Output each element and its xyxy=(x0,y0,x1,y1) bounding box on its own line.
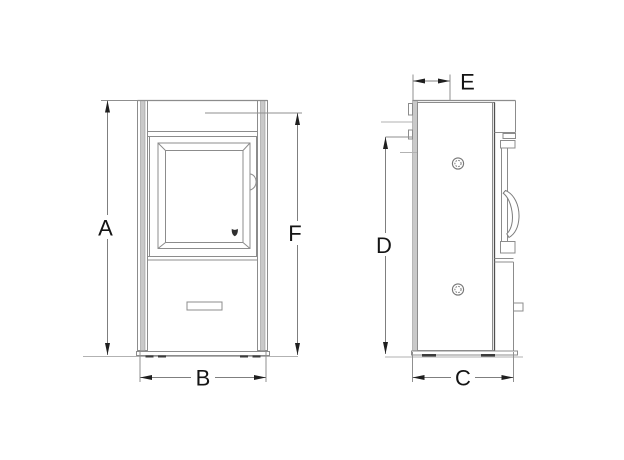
dimension-label-e: E xyxy=(460,70,475,95)
right-side-panel xyxy=(258,101,268,351)
dimension-b: B xyxy=(140,352,266,391)
window-glass xyxy=(166,151,244,243)
dimension-c: C xyxy=(413,352,514,391)
side-door-profile xyxy=(501,141,520,254)
side-knob-bottom xyxy=(452,284,463,295)
front-lower-profile xyxy=(495,259,524,351)
base-plate-front xyxy=(137,352,270,356)
dimension-drawing-page: A F B xyxy=(0,0,624,460)
dimension-d: D xyxy=(373,137,413,354)
side-body-panel xyxy=(418,103,495,351)
upper-band xyxy=(148,132,258,137)
stove-window xyxy=(158,143,250,249)
side-view: E D C xyxy=(373,70,523,391)
dimension-label-b: B xyxy=(196,366,211,391)
side-knob-top xyxy=(452,158,463,169)
stove-dimension-drawing: A F B xyxy=(0,0,624,460)
stove-door xyxy=(148,137,258,261)
left-side-panel xyxy=(138,101,148,351)
dimension-e: E xyxy=(413,70,475,101)
window-logo-icon xyxy=(232,229,238,236)
dimension-label-a: A xyxy=(98,216,113,241)
rear-brackets xyxy=(381,104,417,153)
ash-lever-tab xyxy=(514,303,524,311)
front-view: A F B xyxy=(83,101,308,391)
front-upper-profile xyxy=(495,101,516,139)
dimension-label-d: D xyxy=(376,233,392,258)
dimension-label-c: C xyxy=(455,366,471,391)
door-handle-side xyxy=(503,191,519,238)
rear-wall xyxy=(413,101,418,351)
vent-slot xyxy=(187,302,222,310)
dimension-label-f: F xyxy=(288,221,301,246)
door-handle-front xyxy=(251,174,257,190)
